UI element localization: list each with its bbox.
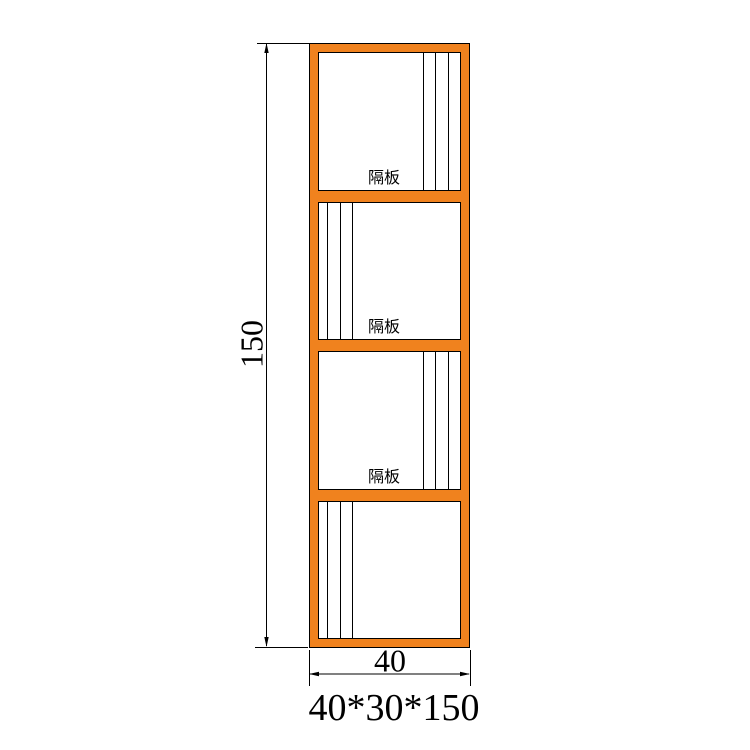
compartment-4 xyxy=(318,501,461,640)
partition-line xyxy=(340,502,341,639)
partition-line xyxy=(435,53,436,190)
drawing-canvas: 隔板 隔板 隔板 xyxy=(0,0,750,750)
product-size-label: 40*30*150 xyxy=(309,686,480,730)
shelf-interior: 隔板 隔板 隔板 xyxy=(318,52,461,639)
dim-arrow-down-icon xyxy=(264,637,268,647)
partition-label: 隔板 xyxy=(368,469,400,486)
compartment-2: 隔板 xyxy=(318,202,461,341)
partition-label: 隔板 xyxy=(368,319,400,336)
shelf-frame: 隔板 隔板 隔板 xyxy=(309,43,470,648)
partition-line xyxy=(352,203,353,340)
partition-line xyxy=(352,502,353,639)
compartment-1: 隔板 xyxy=(318,52,461,191)
width-dimension-value: 40 xyxy=(374,643,406,680)
partition-line xyxy=(448,53,449,190)
dim-arrow-right-icon xyxy=(460,672,470,676)
dim-arrow-left-icon xyxy=(309,672,319,676)
compartment-3: 隔板 xyxy=(318,351,461,490)
shelf-board xyxy=(318,340,461,351)
height-dimension-value: 150 xyxy=(234,320,271,368)
partition-line xyxy=(340,203,341,340)
shelf-board xyxy=(318,191,461,202)
partition-line xyxy=(327,502,328,639)
dim-arrow-up-icon xyxy=(264,43,268,53)
shelf-board xyxy=(318,490,461,501)
partition-label: 隔板 xyxy=(368,170,400,187)
partition-line xyxy=(435,352,436,489)
partition-line xyxy=(423,53,424,190)
partition-line xyxy=(448,352,449,489)
partition-line xyxy=(423,352,424,489)
partition-line xyxy=(327,203,328,340)
